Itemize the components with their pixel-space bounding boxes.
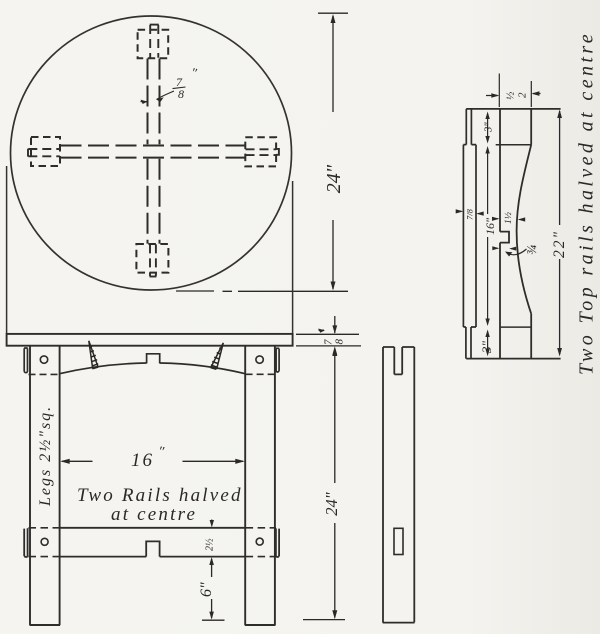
svg-text:7/8: 7/8 <box>465 208 475 220</box>
svg-text:Legs 2½"sq.: Legs 2½"sq. <box>37 405 54 507</box>
svg-text:2½: 2½ <box>205 538 216 551</box>
svg-text:8: 8 <box>334 339 346 345</box>
svg-text:8: 8 <box>178 87 184 101</box>
svg-text:Two Rails halved: Two Rails halved <box>77 485 243 506</box>
svg-text:1½: 1½ <box>503 212 514 224</box>
svg-text:3": 3" <box>484 122 495 133</box>
svg-text:at centre: at centre <box>111 504 197 525</box>
svg-text:6": 6" <box>198 582 215 597</box>
svg-text:Two Top rails halved at centre: Two Top rails halved at centre <box>576 31 598 375</box>
svg-text:24": 24" <box>322 492 341 516</box>
svg-text:24": 24" <box>323 164 345 193</box>
svg-text:22": 22" <box>551 230 568 258</box>
svg-text:16: 16 <box>131 450 154 471</box>
svg-text:3": 3" <box>479 341 494 355</box>
svg-text:½: ½ <box>505 92 517 100</box>
svg-text:2: 2 <box>517 92 529 98</box>
